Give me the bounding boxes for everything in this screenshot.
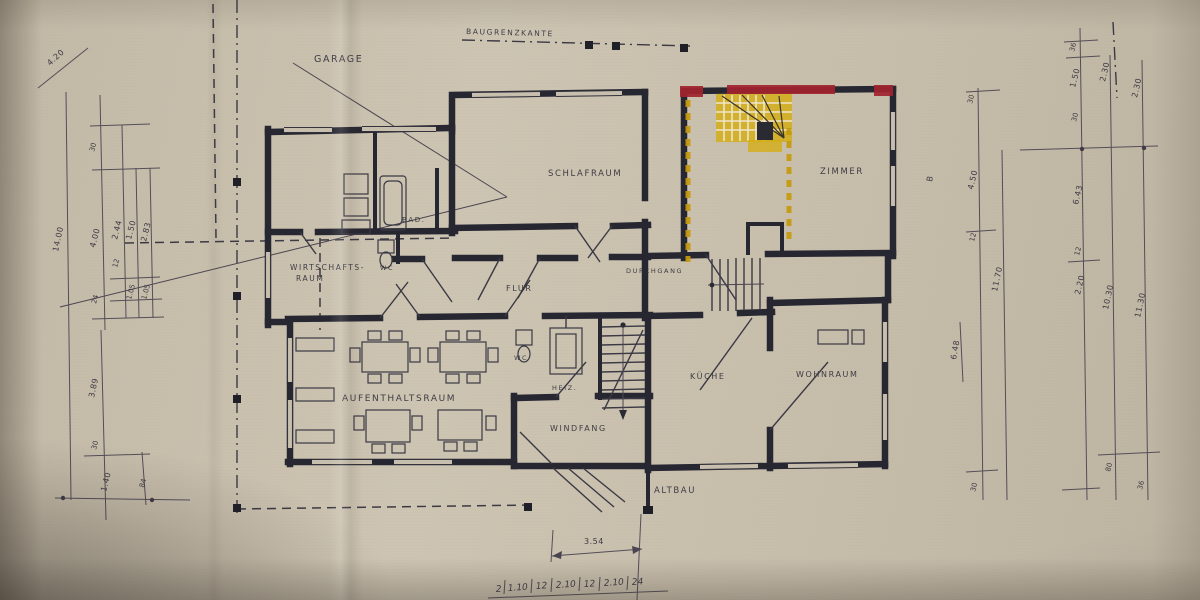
toilet-tank <box>378 240 394 253</box>
window <box>362 127 436 132</box>
wall <box>395 257 648 259</box>
stair-newel <box>757 122 773 140</box>
dim-value: 80 <box>1104 462 1114 473</box>
dim-value: 4.50 <box>966 169 979 190</box>
boundary-marker <box>585 41 593 49</box>
window <box>883 394 888 440</box>
boundary-line-baugrenze <box>462 40 690 46</box>
wall <box>748 224 782 253</box>
window <box>700 464 758 470</box>
dim-value: 12 <box>111 258 121 269</box>
dim-value: 2 <box>496 585 503 595</box>
window <box>883 322 888 362</box>
boundary-line-garage-west <box>213 4 216 238</box>
dim-value: 12 <box>968 232 978 243</box>
stair-arrow <box>619 410 627 420</box>
garage-area: GARAGE <box>60 54 507 307</box>
dim-value: 1.10 <box>508 583 529 594</box>
window <box>266 252 271 298</box>
window <box>788 463 858 469</box>
room-label-wohnraum: WOHNRAUM <box>796 370 858 379</box>
boundary-marker <box>233 178 241 186</box>
dimensions-bottom: 3.54 2 1.10 12 2.10 12 2.10 24 <box>488 514 668 600</box>
room-label-wc-upper: WC <box>380 264 394 272</box>
window <box>312 460 372 465</box>
dim-value: 30 <box>1070 112 1080 123</box>
dim-value: 2.10 <box>604 578 625 589</box>
boiler <box>550 328 582 374</box>
windows <box>266 91 896 470</box>
window <box>288 338 293 382</box>
wall-marker <box>643 506 653 514</box>
dim-value: 6.48 <box>949 339 961 360</box>
dim-value: 4.00 <box>88 227 102 248</box>
dim-value: 30 <box>966 94 976 105</box>
dimensions-left: 4.20 14.00 30 4.00 24 2.44 12 1.50 1.05 … <box>38 48 190 520</box>
dim-value: 36 <box>1136 479 1146 490</box>
wall <box>452 225 648 228</box>
boundary-marker <box>524 503 532 511</box>
dim-value: 30 <box>88 142 98 153</box>
stair-start-dot <box>620 322 625 327</box>
window <box>891 166 896 206</box>
dimensions-right: 30 4.50 12 30 11.70 36 1.50 30 6.43 12 2… <box>949 28 1160 500</box>
dim-value: 2.20 <box>1073 274 1086 295</box>
stair-highlight-foot <box>748 140 782 152</box>
room-label-altbau: ALTBAU <box>654 486 696 496</box>
room-label-wirtschaftsraum-2: RAUM <box>296 274 324 283</box>
dim-value: 3.89 <box>87 377 100 398</box>
room-label-aufenthaltsraum: AUFENTHALTSRAUM <box>342 394 456 404</box>
room-labels: SCHLAFRAUM ZIMMER BAD. WC WIRTSCHAFTS- R… <box>290 167 935 496</box>
yellow-highlight-markup <box>688 94 792 262</box>
dim-value: 12 <box>1073 246 1083 257</box>
dim-value: 1.40 <box>99 471 113 492</box>
dim-value: 2.30 <box>1130 77 1143 98</box>
room-label-zimmer: ZIMMER <box>820 167 864 177</box>
window <box>472 92 540 98</box>
room-label-durchgang: DURCHGANG <box>626 267 683 275</box>
room-label-wirtschaftsraum-1: WIRTSCHAFTS- <box>290 263 365 272</box>
floor-plan-photo: GARAGE BAUGRENZKANTE <box>0 0 1200 600</box>
dim-value: 12 <box>584 579 596 590</box>
room-label-heiz: HEIZ. <box>552 384 577 392</box>
wall <box>648 312 772 316</box>
boundary-line-northeast <box>1113 22 1117 98</box>
dim-value: 2.10 <box>556 580 577 591</box>
dim-value: 12 <box>536 581 548 592</box>
dim-value: 1.05 <box>125 283 137 300</box>
room-label-schlafraum: SCHLAFRAUM <box>548 169 622 179</box>
passage-staircase <box>708 258 764 311</box>
dim-value: 30 <box>90 440 100 451</box>
lounge-furniture <box>350 331 498 453</box>
boundary-marker <box>233 292 241 300</box>
window <box>288 400 293 448</box>
window <box>556 91 622 97</box>
section-mark-b: B <box>925 174 935 183</box>
dim-value: 30 <box>969 482 979 493</box>
room-label-flur: FLUR <box>506 284 532 293</box>
room-label-bad: BAD. <box>402 216 426 224</box>
window <box>394 460 452 465</box>
boundary-line-south <box>237 505 532 509</box>
entrance-step <box>583 468 625 502</box>
dim-value: 4.20 <box>45 48 66 68</box>
wall <box>268 322 290 464</box>
dim-value: 2.44 <box>110 219 124 240</box>
wall <box>770 300 888 303</box>
boundary-label: BAUGRENZKANTE <box>466 27 554 38</box>
boundary-marker <box>233 504 241 512</box>
dim-value: 2.83 <box>139 221 153 242</box>
dim-value: 1.05 <box>140 283 152 300</box>
room-label-kueche: KÜCHE <box>690 371 726 381</box>
room-label-windfang: WINDFANG <box>550 424 607 433</box>
wall <box>268 231 455 232</box>
stair-start-dot <box>710 283 715 288</box>
dim-value: 24 <box>90 293 100 304</box>
dim-value: 1.50 <box>124 219 138 240</box>
walls <box>268 89 893 514</box>
dim-value: 3.54 <box>584 537 604 546</box>
dim-value: 11.70 <box>990 266 1004 293</box>
room-label-garage: GARAGE <box>314 54 363 65</box>
dim-value: 24 <box>632 577 644 588</box>
window <box>284 128 332 133</box>
main-staircase <box>602 322 645 420</box>
dim-value: 14.00 <box>51 226 65 253</box>
window <box>891 112 896 150</box>
boundary-line-garage-south <box>125 238 455 243</box>
boundary-marker <box>680 44 688 52</box>
dim-value: 1.50 <box>1068 67 1082 88</box>
dim-value: 2.30 <box>1098 61 1111 82</box>
floor-plan-drawing: GARAGE BAUGRENZKANTE <box>0 0 1200 600</box>
dim-value: 84 <box>138 477 148 488</box>
room-label-wc-lower: WC <box>514 354 528 362</box>
boundary-marker <box>612 42 620 50</box>
wall <box>288 315 650 319</box>
handwritten-dim-chain: 2 1.10 12 2.10 12 2.10 24 <box>496 576 644 595</box>
stair-direction-line <box>708 284 764 285</box>
wall <box>648 253 893 256</box>
boundary-marker <box>233 395 241 403</box>
dim-value: 36 <box>1068 41 1078 52</box>
